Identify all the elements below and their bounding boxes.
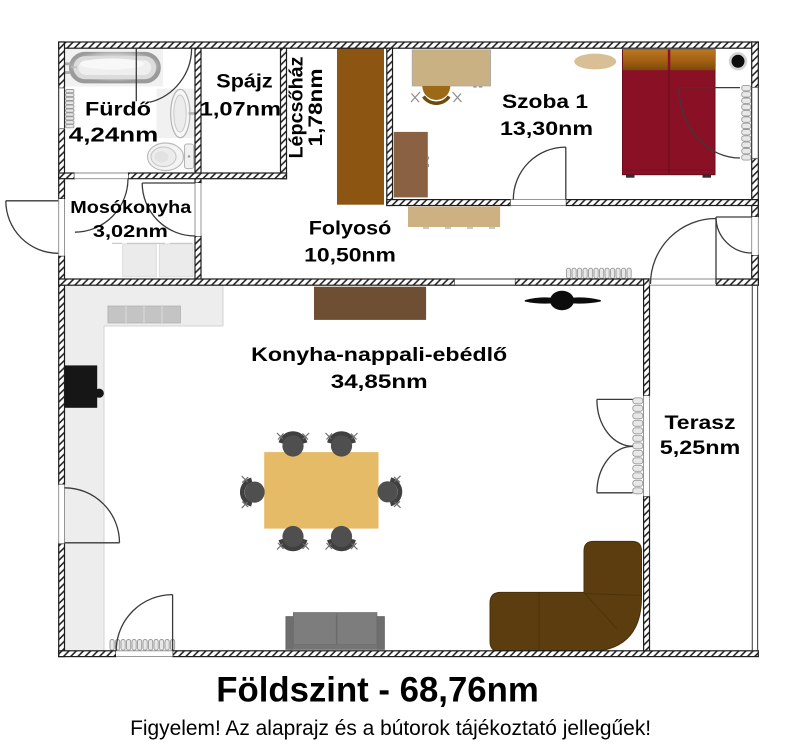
svg-text:Földszint - 68,76nm: Földszint - 68,76nm — [216, 670, 539, 709]
svg-text:5,25nm: 5,25nm — [660, 437, 741, 459]
svg-text:Mosókonyha: Mosókonyha — [70, 197, 191, 217]
svg-text:Lépcsőház: Lépcsőház — [287, 57, 308, 159]
svg-text:4,24nm: 4,24nm — [69, 124, 159, 146]
svg-text:Konyha-nappali-ebédlő: Konyha-nappali-ebédlő — [251, 344, 507, 366]
svg-text:3,02nm: 3,02nm — [93, 221, 168, 241]
svg-text:10,50nm: 10,50nm — [304, 244, 396, 266]
svg-text:Terasz: Terasz — [665, 412, 736, 434]
svg-text:Folyosó: Folyosó — [309, 218, 392, 240]
svg-text:34,85nm: 34,85nm — [331, 371, 428, 393]
svg-text:Figyelem! Az alaprajz és a bút: Figyelem! Az alaprajz és a bútorok tájék… — [130, 717, 651, 740]
svg-text:1,07nm: 1,07nm — [200, 100, 281, 121]
svg-text:Spájz: Spájz — [216, 72, 272, 93]
svg-text:13,30nm: 13,30nm — [500, 118, 593, 140]
svg-text:Szoba 1: Szoba 1 — [502, 91, 588, 113]
svg-text:Fürdő: Fürdő — [85, 99, 151, 120]
svg-text:1,78nm: 1,78nm — [306, 69, 327, 147]
